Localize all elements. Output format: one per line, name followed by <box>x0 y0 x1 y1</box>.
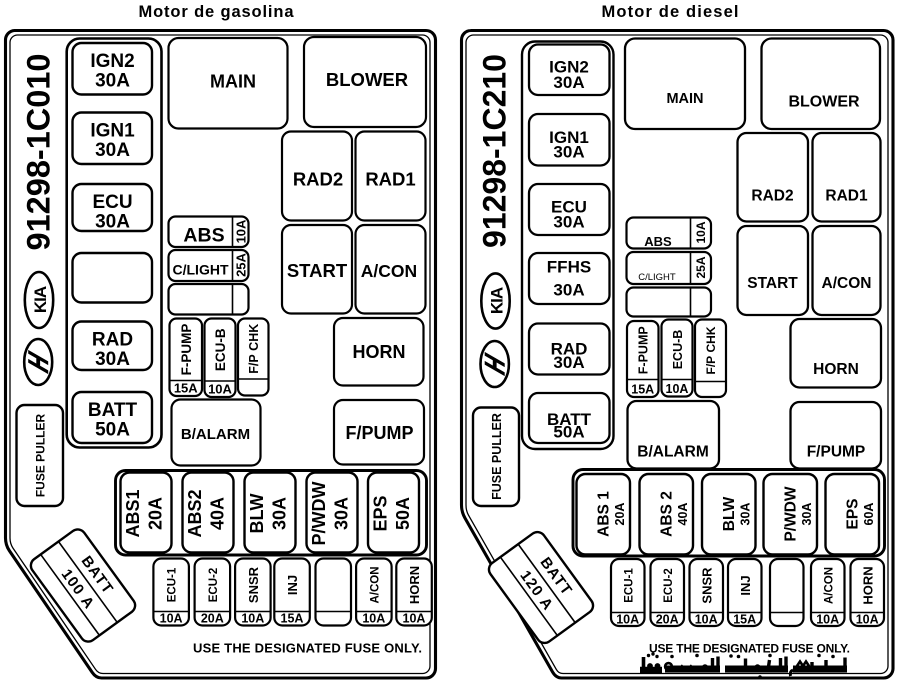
svg-text:EPS: EPS <box>845 498 862 529</box>
svg-text:40A: 40A <box>676 503 690 526</box>
svg-text:ECU-1: ECU-1 <box>623 568 635 603</box>
svg-text:10A: 10A <box>616 613 639 627</box>
svg-text:C/LIGHT: C/LIGHT <box>638 272 676 283</box>
svg-text:F/PUMP: F/PUMP <box>345 423 413 443</box>
svg-text:P/WDW: P/WDW <box>309 481 329 545</box>
svg-text:40A: 40A <box>208 497 228 530</box>
svg-text:FFHS: FFHS <box>547 258 591 277</box>
svg-text:F/P CHK: F/P CHK <box>247 324 261 374</box>
svg-text:10A: 10A <box>160 612 183 626</box>
svg-text:IGN1: IGN1 <box>90 121 135 142</box>
svg-text:10A: 10A <box>362 612 385 626</box>
svg-text:20A: 20A <box>146 497 166 530</box>
svg-text:15A: 15A <box>733 613 756 627</box>
svg-text:50A: 50A <box>553 423 584 442</box>
svg-text:SNSR: SNSR <box>699 567 714 604</box>
svg-text:C/LIGHT: C/LIGHT <box>173 262 229 278</box>
svg-text:10A: 10A <box>208 382 232 397</box>
svg-text:BLW: BLW <box>247 493 267 533</box>
svg-text:HORN: HORN <box>860 566 875 604</box>
svg-text:RAD2: RAD2 <box>293 169 343 190</box>
svg-text:20A: 20A <box>201 612 224 626</box>
svg-text:30A: 30A <box>553 353 584 372</box>
svg-text:BATT: BATT <box>88 400 138 421</box>
svg-text:HORN: HORN <box>353 342 406 362</box>
svg-text:15A: 15A <box>281 612 304 626</box>
svg-text:MAIN: MAIN <box>666 91 703 107</box>
svg-text:50A: 50A <box>95 420 130 441</box>
svg-text:60A: 60A <box>862 503 876 526</box>
svg-text:91298-1C210: 91298-1C210 <box>477 54 513 248</box>
svg-text:Motor de gasolina: Motor de gasolina <box>139 3 295 21</box>
svg-text:FUSE PULLER: FUSE PULLER <box>490 413 504 500</box>
svg-text:B/ALARM: B/ALARM <box>637 444 708 461</box>
svg-text:FUSE PULLER: FUSE PULLER <box>34 414 48 498</box>
svg-text:KIA: KIA <box>31 286 50 313</box>
svg-text:25A: 25A <box>694 256 708 278</box>
svg-text:USE THE DESIGNATED FUSE ONLY.: USE THE DESIGNATED FUSE ONLY. <box>193 641 422 656</box>
svg-text:ECU-B: ECU-B <box>213 328 228 371</box>
svg-text:30A: 30A <box>553 143 584 162</box>
svg-text:ABS 2: ABS 2 <box>659 491 676 537</box>
svg-text:IGN2: IGN2 <box>90 51 134 72</box>
svg-text:ABS1: ABS1 <box>123 489 143 537</box>
svg-text:F-PUMP: F-PUMP <box>637 326 651 374</box>
svg-text:30A: 30A <box>95 71 130 92</box>
svg-text:RAD: RAD <box>92 330 133 351</box>
svg-text:INJ: INJ <box>738 575 753 595</box>
svg-text:50A: 50A <box>393 497 413 530</box>
svg-text:F/P CHK: F/P CHK <box>704 326 718 374</box>
svg-text:INJ: INJ <box>285 575 300 595</box>
svg-text:RAD1: RAD1 <box>365 169 415 190</box>
svg-text:HORN: HORN <box>407 566 422 604</box>
svg-text:RAD1: RAD1 <box>825 188 868 205</box>
svg-text:ECU-B: ECU-B <box>671 330 685 370</box>
svg-text:10A: 10A <box>694 221 708 243</box>
svg-text:START: START <box>287 260 348 281</box>
svg-text:ABS 1: ABS 1 <box>596 491 613 537</box>
svg-text:A/CON: A/CON <box>823 567 835 604</box>
svg-text:BLW: BLW <box>721 496 738 531</box>
svg-text:HORN: HORN <box>813 361 859 378</box>
svg-text:ECU: ECU <box>92 192 132 213</box>
svg-text:A/CON: A/CON <box>369 566 381 603</box>
svg-text:EPS: EPS <box>371 495 391 531</box>
svg-text:BLOWER: BLOWER <box>326 69 408 90</box>
svg-text:15A: 15A <box>174 381 198 396</box>
svg-text:ABS2: ABS2 <box>185 489 205 537</box>
svg-text:F-PUMP: F-PUMP <box>179 324 194 376</box>
svg-text:START: START <box>747 275 798 292</box>
svg-text:30A: 30A <box>553 73 584 92</box>
svg-text:10A: 10A <box>241 612 264 626</box>
svg-text:30A: 30A <box>95 140 130 161</box>
svg-text:30A: 30A <box>553 213 584 232</box>
svg-text:20A: 20A <box>613 503 627 526</box>
svg-text:30A: 30A <box>95 349 130 370</box>
svg-text:10A: 10A <box>666 382 689 396</box>
svg-text:KIA: KIA <box>488 287 507 314</box>
svg-text:10A: 10A <box>695 613 718 627</box>
svg-text:30A: 30A <box>332 497 352 530</box>
svg-text:RAD2: RAD2 <box>751 188 793 205</box>
svg-text:10A: 10A <box>856 613 879 627</box>
svg-text:25A: 25A <box>233 252 248 276</box>
svg-text:Motor de diesel: Motor de diesel <box>602 3 739 21</box>
svg-text:ECU-2: ECU-2 <box>208 568 220 603</box>
svg-text:B/ALARM: B/ALARM <box>181 426 250 443</box>
svg-text:20A: 20A <box>656 613 679 627</box>
svg-text:30A: 30A <box>270 497 290 530</box>
svg-text:A/CON: A/CON <box>361 261 417 281</box>
svg-text:10A: 10A <box>816 613 839 627</box>
svg-text:ECU-1: ECU-1 <box>167 567 179 602</box>
svg-text:MAIN: MAIN <box>210 72 256 92</box>
svg-text:ABS: ABS <box>183 225 224 247</box>
svg-text:30A: 30A <box>95 212 130 233</box>
svg-text:30A: 30A <box>553 281 584 300</box>
svg-text:30A: 30A <box>800 503 814 526</box>
svg-text:USE THE DESIGNATED FUSE ONLY.: USE THE DESIGNATED FUSE ONLY. <box>649 642 850 656</box>
svg-text:10A: 10A <box>403 612 426 626</box>
svg-text:SNSR: SNSR <box>246 566 261 603</box>
svg-text:F/PUMP: F/PUMP <box>807 444 866 461</box>
svg-text:91298-1C010: 91298-1C010 <box>20 54 56 251</box>
svg-text:30A: 30A <box>739 503 753 526</box>
svg-text:BLOWER: BLOWER <box>788 94 860 111</box>
svg-text:ABS: ABS <box>644 234 672 249</box>
svg-text:P/WDW: P/WDW <box>783 486 800 541</box>
svg-text:A/CON: A/CON <box>822 275 872 292</box>
svg-text:10A: 10A <box>233 219 248 243</box>
svg-text:15A: 15A <box>631 383 654 397</box>
svg-text:ECU-2: ECU-2 <box>663 568 675 603</box>
